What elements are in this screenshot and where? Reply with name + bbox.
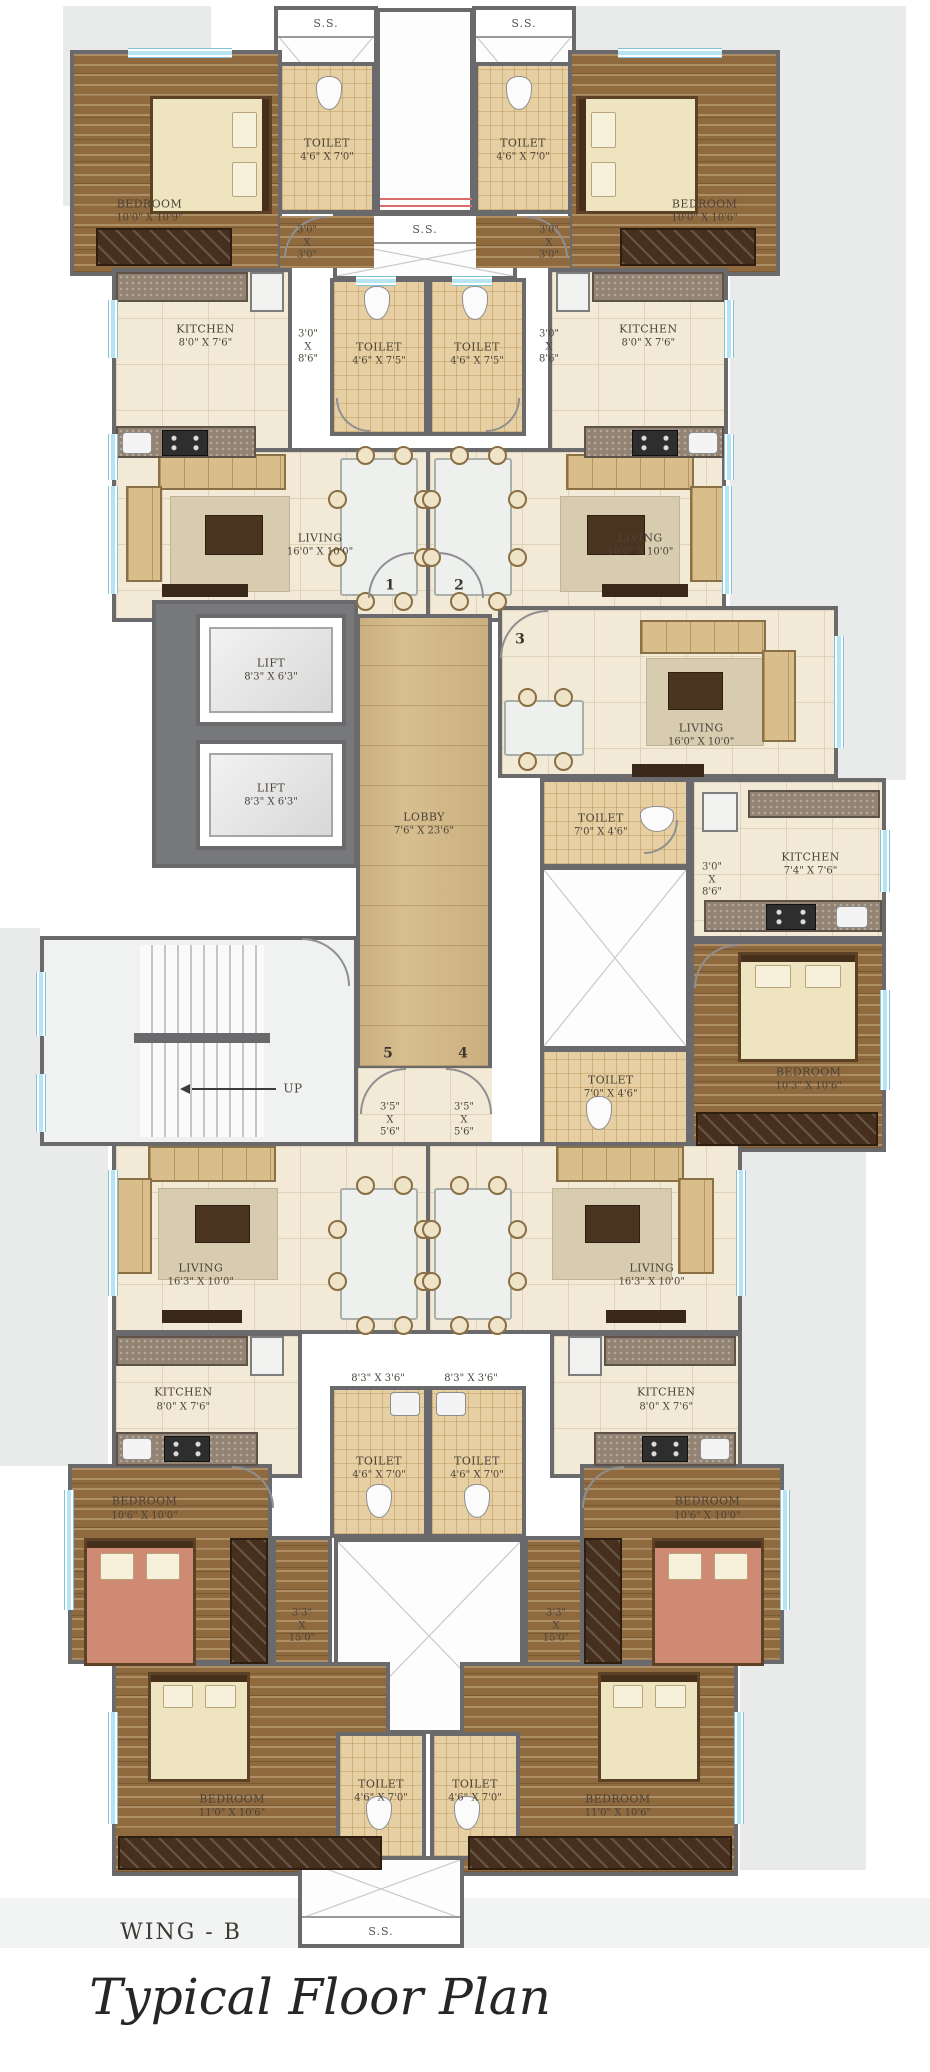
window — [734, 1712, 744, 1824]
accent-line-1 — [380, 205, 472, 207]
bed-furniture — [576, 96, 698, 214]
room-dimensions: 4'6" X 7'0" — [448, 1792, 502, 1805]
sofa-furniture — [640, 620, 766, 654]
dining-chair — [450, 1316, 469, 1335]
room-name: KITCHEN — [176, 322, 234, 336]
coffee-furniture — [668, 672, 723, 710]
background-block-3 — [838, 610, 906, 780]
bed-pillow — [100, 1553, 134, 1579]
dimension-label: 3'5" X 5'6" — [380, 1101, 400, 1139]
window — [128, 48, 232, 58]
room-label: LOBBY7'6" X 23'6" — [394, 810, 454, 837]
window — [356, 276, 396, 286]
dimension-label: 8'3" X 3'6" — [351, 1373, 405, 1386]
bed-pillow — [591, 112, 616, 148]
room-label: BEDROOM10'6" X 10'0" — [674, 1495, 740, 1522]
room-dimensions: 8'3" X 6'3" — [244, 796, 298, 809]
room-dimensions: 16'3" X 10'0" — [168, 1275, 234, 1288]
room-label: TOILET4'6" X 7'5" — [450, 340, 504, 367]
room-label: BEDROOM11'0" X 10'6" — [199, 1792, 265, 1819]
room-label: BEDROOM10'0" X 10'6" — [671, 197, 737, 224]
sofa-furniture — [678, 1178, 714, 1274]
dining-chair — [518, 752, 537, 771]
dimension-label: 3'0" X 8'6" — [539, 328, 559, 366]
sofa-furniture — [566, 454, 694, 490]
room-label: BEDROOM10'3" X 10'6" — [775, 1065, 841, 1092]
room-label: TOILET4'6" X 7'0" — [496, 136, 550, 163]
bed-pillow — [146, 1553, 180, 1579]
unit-number-1: 1 — [385, 577, 395, 595]
room-dimensions: 16'0" X 10'0" — [287, 546, 353, 559]
dining-chair — [508, 1272, 527, 1291]
dining-furniture — [504, 700, 584, 756]
dining-chair — [356, 446, 375, 465]
room-label: LIVING16'0" X 10'0" — [287, 531, 353, 558]
dining-chair — [356, 1176, 375, 1195]
fridge-furniture — [568, 1336, 602, 1376]
sofa-furniture — [148, 1146, 276, 1182]
dining-chair — [450, 446, 469, 465]
tv-furniture — [162, 584, 248, 597]
room-dimensions: 7'0" X 4'6" — [584, 1088, 638, 1101]
stove-furniture — [642, 1436, 688, 1462]
room-name: BEDROOM — [775, 1065, 841, 1079]
room-dimensions: 16'3" X 10'0" — [619, 1275, 685, 1288]
fridge-furniture — [556, 272, 590, 312]
sink-furniture — [122, 1438, 152, 1460]
room-name: BEDROOM — [585, 1792, 651, 1806]
room-label: TOILET4'6" X 7'5" — [352, 340, 406, 367]
room-dimensions: 4'6" X 7'5" — [352, 355, 406, 368]
room-name: KITCHEN — [637, 1386, 695, 1400]
room-dimensions: 10'3" X 10'6" — [775, 1079, 841, 1092]
room-name: KITCHEN — [619, 322, 677, 336]
room-name: TOILET — [352, 1454, 406, 1468]
unit-number-4: 4 — [458, 1045, 468, 1063]
dining-chair — [518, 688, 537, 707]
room-dimensions: 10'0" X 10'6" — [671, 212, 737, 225]
sink-furniture — [436, 1392, 466, 1416]
sink-furniture — [700, 1438, 730, 1460]
bed-headboard — [579, 99, 586, 211]
bed-pillow — [805, 965, 841, 988]
room-dimensions: 10'0" X 10'9" — [116, 212, 182, 225]
accent-line-2 — [192, 1088, 276, 1090]
shaft-cross — [544, 870, 686, 1046]
wardrobe-furniture — [96, 228, 232, 266]
room-label: LIFT8'3" X 6'3" — [244, 656, 298, 683]
room-dimensions: 8'3" X 6'3" — [244, 671, 298, 684]
unit-number-5: 5 — [383, 1045, 393, 1063]
unit-number-2: 2 — [454, 577, 464, 595]
sink-furniture — [688, 432, 718, 454]
room-label: TOILET4'6" X 7'0" — [354, 1778, 408, 1805]
bed-furniture — [652, 1538, 764, 1666]
room-name: LIFT — [244, 781, 298, 795]
counter-furniture — [748, 790, 880, 818]
room-label: LIFT8'3" X 6'3" — [244, 781, 298, 808]
dining-chair — [488, 446, 507, 465]
bed-pillow — [205, 1685, 236, 1708]
background-block-5 — [0, 1146, 108, 1466]
shaft-void-top — [376, 8, 474, 214]
room-name: BEDROOM — [199, 1792, 265, 1806]
window — [618, 48, 722, 58]
window — [880, 830, 890, 892]
bed-furniture — [150, 96, 272, 214]
stair-landing — [134, 1033, 270, 1043]
bed-pillow — [655, 1685, 686, 1708]
lift-1: LIFT8'3" X 6'3" — [196, 614, 346, 726]
bed-headboard — [741, 955, 855, 962]
window — [880, 990, 890, 1090]
wardrobe-furniture — [620, 228, 756, 266]
wing-label: WING - B — [96, 1920, 266, 1945]
window — [36, 972, 46, 1036]
room-dimensions: 11'0" X 10'6" — [199, 1807, 265, 1820]
room-label: LIVING16'0" X 10'0" — [607, 531, 673, 558]
room-dimensions: 10'6" X 10'0" — [674, 1509, 740, 1522]
coffee-furniture — [205, 515, 263, 555]
room-name: TOILET — [450, 340, 504, 354]
room-name: LIFT — [244, 656, 298, 670]
room-dimensions: 8'0" X 7'6" — [637, 1400, 695, 1413]
bed-pillow — [714, 1553, 748, 1579]
room-label: TOILET4'6" X 7'0" — [450, 1454, 504, 1481]
room-label: BEDROOM10'0" X 10'9" — [116, 197, 182, 224]
window — [36, 1074, 46, 1132]
coffee-furniture — [585, 1205, 640, 1243]
bed-furniture — [148, 1672, 250, 1782]
room-name: LIVING — [619, 1261, 685, 1275]
window — [108, 486, 118, 594]
bed-pillow — [755, 965, 791, 988]
room-name: TOILET — [574, 811, 628, 825]
room-label: KITCHEN8'0" X 7'6" — [154, 1386, 212, 1413]
dimension-label: 3'0" X 3'0" — [539, 224, 559, 262]
room-dimensions: 7'0" X 4'6" — [574, 825, 628, 838]
bed-headboard — [262, 99, 269, 211]
room-dimensions: 4'6" X 7'0" — [354, 1792, 408, 1805]
window — [722, 486, 732, 594]
sofa-furniture — [556, 1146, 684, 1182]
room-label: LIVING16'3" X 10'0" — [619, 1261, 685, 1288]
room-name: BEDROOM — [671, 197, 737, 211]
window — [834, 636, 844, 748]
background-block-7 — [740, 1662, 866, 1870]
dining-chair — [488, 1176, 507, 1195]
room-label: LIVING16'3" X 10'0" — [168, 1261, 234, 1288]
dining-chair — [422, 1220, 441, 1239]
room-dimensions: 4'6" X 7'0" — [496, 150, 550, 163]
dining-chair — [394, 1176, 413, 1195]
room-dimensions: 16'0" X 10'0" — [668, 735, 734, 748]
shaft-label: S.S. — [476, 10, 572, 38]
unit-number-3: 3 — [515, 631, 525, 649]
room-label: BEDROOM10'6" X 10'0" — [111, 1495, 177, 1522]
fridge-furniture — [250, 272, 284, 312]
bed-headboard — [151, 1675, 247, 1682]
room-name: TOILET — [450, 1454, 504, 1468]
room-dimensions: 4'6" X 7'0" — [300, 150, 354, 163]
dimension-label: 3'3" X 15'0" — [289, 1607, 315, 1645]
room-name: BEDROOM — [674, 1495, 740, 1509]
room-label: LIVING16'0" X 10'0" — [668, 721, 734, 748]
sofa-furniture — [690, 486, 726, 582]
room-label: TOILET4'6" X 7'0" — [352, 1454, 406, 1481]
dining-chair — [394, 1316, 413, 1335]
dining-chair — [450, 1176, 469, 1195]
dining-furniture — [340, 1188, 418, 1320]
room-name: LIVING — [168, 1261, 234, 1275]
tv-furniture — [632, 764, 704, 777]
lobby: LOBBY7'6" X 23'6" — [356, 614, 492, 1070]
shaft-label: S.S. — [302, 1916, 460, 1944]
bed-pillow — [163, 1685, 194, 1708]
dimension-label: 8'3" X 3'6" — [444, 1373, 498, 1386]
up-arrow-head — [180, 1084, 190, 1094]
window — [64, 1490, 74, 1610]
dining-chair — [488, 1316, 507, 1335]
dining-chair — [328, 1272, 347, 1291]
room-dimensions: 10'6" X 10'0" — [111, 1509, 177, 1522]
room-dimensions: 4'6" X 7'0" — [352, 1468, 406, 1481]
room-dimensions: 16'0" X 10'0" — [607, 546, 673, 559]
floor-plan-canvas: WING - B Typical Floor Plan S.S.S.S.BEDR… — [0, 0, 930, 2072]
shaft-label: S.S. — [278, 10, 374, 38]
room-name: TOILET — [448, 1778, 502, 1792]
window — [108, 434, 118, 480]
room-dimensions: 7'6" X 23'6" — [394, 825, 454, 838]
accent-line-0 — [380, 198, 472, 200]
bed-headboard — [655, 1541, 761, 1548]
wardrobe-furniture — [696, 1112, 878, 1146]
dimension-label: 3'0" X 8'6" — [298, 328, 318, 366]
room-name: LOBBY — [394, 810, 454, 824]
sofa-furniture — [126, 486, 162, 582]
duct-flat3 — [540, 866, 690, 1050]
room-dimensions: 4'6" X 7'0" — [450, 1468, 504, 1481]
room-dimensions: 4'6" X 7'5" — [450, 355, 504, 368]
bed-pillow — [232, 162, 257, 198]
room-dimensions: 7'4" X 7'6" — [781, 864, 839, 877]
room-label: TOILET7'0" X 4'6" — [574, 811, 628, 838]
tv-furniture — [602, 584, 688, 597]
dining-chair — [554, 752, 573, 771]
counter-furniture — [604, 1336, 736, 1366]
sink-furniture — [390, 1392, 420, 1416]
room-dimensions: 8'0" X 7'6" — [176, 336, 234, 349]
room-name: TOILET — [352, 340, 406, 354]
up-label: UP — [283, 1082, 302, 1097]
room-name: KITCHEN — [154, 1386, 212, 1400]
dining-chair — [394, 446, 413, 465]
stove-furniture — [162, 430, 208, 456]
room-name: BEDROOM — [116, 197, 182, 211]
room-dimensions: 8'0" X 7'6" — [154, 1400, 212, 1413]
bed-headboard — [87, 1541, 193, 1548]
sink-furniture — [836, 906, 868, 928]
fridge-furniture — [250, 1336, 284, 1376]
plan-title: Typical Floor Plan — [50, 1968, 590, 2026]
sink-furniture — [122, 432, 152, 454]
room-name: KITCHEN — [781, 850, 839, 864]
dining-chair — [488, 592, 507, 611]
dining-chair — [508, 490, 527, 509]
bed-pillow — [591, 162, 616, 198]
sofa-furniture — [116, 1178, 152, 1274]
dining-chair — [508, 548, 527, 567]
room-name: TOILET — [300, 136, 354, 150]
window — [452, 276, 492, 286]
room-name: BEDROOM — [111, 1495, 177, 1509]
bed-furniture — [598, 1672, 700, 1782]
room-label: TOILET4'6" X 7'0" — [448, 1778, 502, 1805]
room-label: KITCHEN8'0" X 7'6" — [637, 1386, 695, 1413]
window — [108, 1170, 118, 1296]
fridge-furniture — [702, 792, 738, 832]
sofa-furniture — [762, 650, 796, 742]
bed-furniture — [738, 952, 858, 1062]
dining-chair — [328, 1220, 347, 1239]
background-block-4 — [0, 928, 40, 1152]
coffee-furniture — [195, 1205, 250, 1243]
dining-chair — [422, 490, 441, 509]
room-name: TOILET — [496, 136, 550, 150]
counter-furniture — [592, 272, 724, 302]
room-dimensions: 11'0" X 10'6" — [585, 1807, 651, 1820]
stove-furniture — [632, 430, 678, 456]
room-label: TOILET4'6" X 7'0" — [300, 136, 354, 163]
dining-furniture — [434, 1188, 512, 1320]
room-name: TOILET — [584, 1073, 638, 1087]
room-dimensions: 8'0" X 7'6" — [619, 336, 677, 349]
dimension-label: 3'5" X 5'6" — [454, 1101, 474, 1139]
wardrobe-furniture — [118, 1836, 382, 1870]
dining-chair — [508, 1220, 527, 1239]
dining-chair — [554, 688, 573, 707]
window — [736, 1170, 746, 1296]
room-label: KITCHEN7'4" X 7'6" — [781, 850, 839, 877]
toilet-flat3-b: TOILET7'0" X 4'6" — [540, 1048, 690, 1148]
bed-pillow — [613, 1685, 644, 1708]
stove-furniture — [164, 1436, 210, 1462]
wardrobe-furniture — [584, 1538, 622, 1664]
tv-furniture — [606, 1310, 686, 1323]
dimension-label: 3'0" X 8'6" — [702, 861, 722, 899]
room-name: LIVING — [287, 531, 353, 545]
lift-2: LIFT8'3" X 6'3" — [196, 740, 346, 850]
room-label: KITCHEN8'0" X 7'6" — [619, 322, 677, 349]
dining-chair — [422, 1272, 441, 1291]
sofa-furniture — [158, 454, 286, 490]
window — [108, 1712, 118, 1824]
room-label: KITCHEN8'0" X 7'6" — [176, 322, 234, 349]
dining-chair — [328, 490, 347, 509]
window — [724, 300, 734, 358]
counter-furniture — [116, 272, 248, 302]
stove-furniture — [766, 904, 816, 930]
tv-furniture — [162, 1310, 242, 1323]
room-name: LIVING — [668, 721, 734, 735]
dimension-label: 3'0" X 3'0" — [297, 224, 317, 262]
window — [724, 434, 734, 480]
room-label: TOILET7'0" X 4'6" — [584, 1073, 638, 1100]
dining-chair — [356, 1316, 375, 1335]
room-name: TOILET — [354, 1778, 408, 1792]
bed-pillow — [668, 1553, 702, 1579]
bed-pillow — [232, 112, 257, 148]
counter-furniture — [116, 1336, 248, 1366]
bed-headboard — [601, 1675, 697, 1682]
dimension-label: 3'3" X 15'0" — [543, 1607, 569, 1645]
room-name: LIVING — [607, 531, 673, 545]
window — [108, 300, 118, 358]
wardrobe-furniture — [468, 1836, 732, 1870]
bed-furniture — [84, 1538, 196, 1666]
wardrobe-furniture — [230, 1538, 268, 1664]
window — [780, 1490, 790, 1610]
room-label: BEDROOM11'0" X 10'6" — [585, 1792, 651, 1819]
